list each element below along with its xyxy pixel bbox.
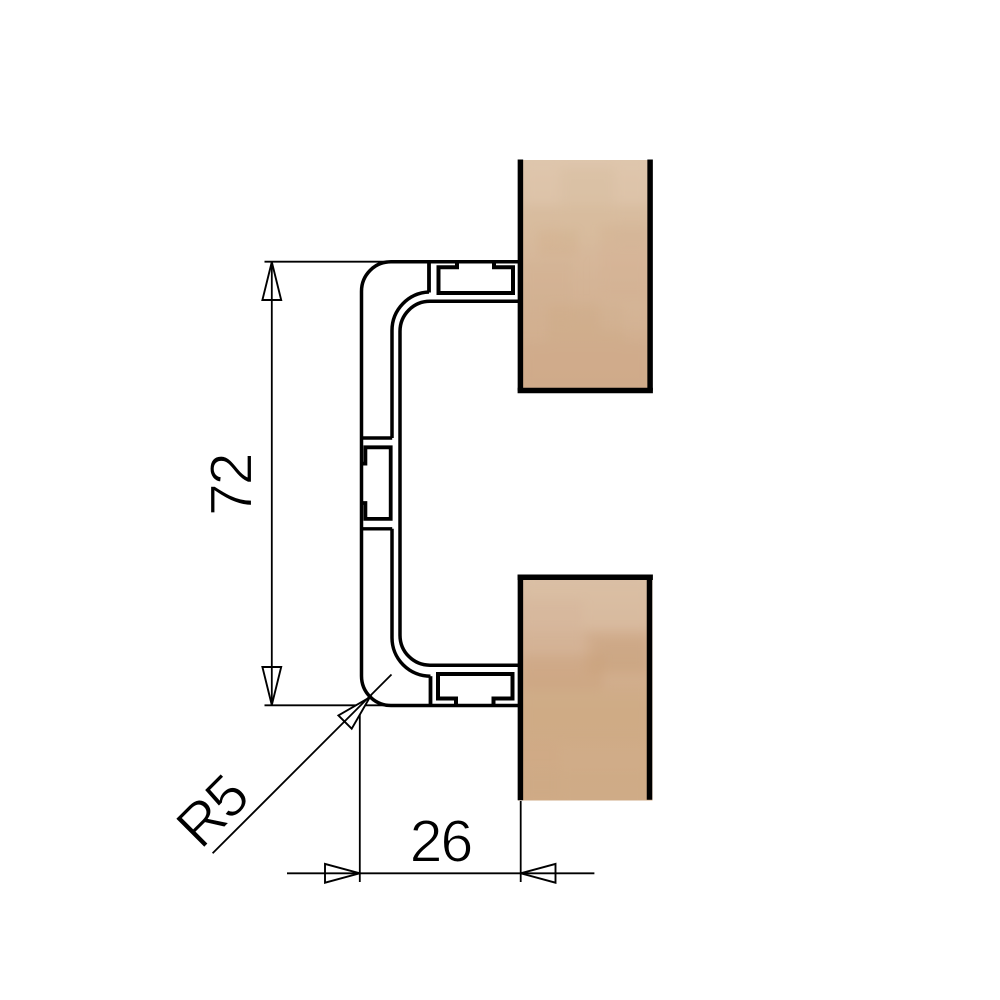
svg-text:26: 26	[410, 809, 472, 875]
svg-text:72: 72	[199, 454, 265, 516]
